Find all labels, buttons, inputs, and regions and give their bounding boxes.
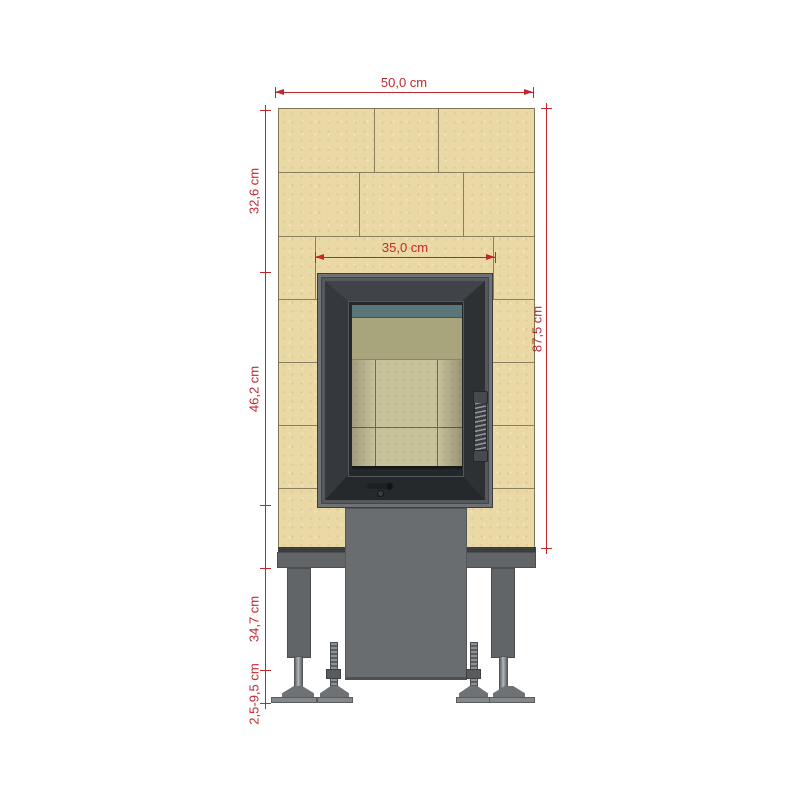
firebox-side-shadow — [352, 360, 375, 466]
firebrick-lining — [352, 360, 462, 466]
floor-plate-inner-left — [317, 697, 353, 703]
tile-joint — [438, 109, 439, 172]
pedestal-column — [345, 508, 467, 680]
dim-tick-icon — [260, 698, 271, 709]
floor-plate-outer-left — [271, 697, 317, 703]
threaded-rod-inner-right — [470, 642, 478, 690]
dim-tick-icon — [260, 665, 271, 676]
adjuster-nut-inner-left — [326, 669, 341, 679]
baffle-plate — [352, 318, 462, 360]
dim-label-insert-width: 35,0 cm — [382, 240, 428, 255]
adjuster-nut-inner-right — [466, 669, 481, 679]
support-leg-outer-left — [287, 568, 311, 658]
firebox-floor — [352, 466, 462, 469]
dim-line-total-height — [546, 108, 547, 549]
dim-line-insert-width — [315, 257, 495, 258]
dim-tick-icon — [260, 105, 271, 116]
dim-label-feet-range: 2,5-9,5 cm — [247, 663, 262, 724]
dim-arrow-icon — [275, 89, 284, 95]
dim-extension-tick — [495, 252, 496, 263]
door-latch-pin — [387, 483, 392, 490]
firebrick-joint — [375, 360, 376, 466]
door-glass — [352, 305, 462, 469]
tile-joint — [279, 172, 534, 173]
spring-handle-coil — [474, 403, 487, 451]
support-leg-outer-right — [491, 568, 515, 658]
dim-label-upper-height: 32,6 cm — [247, 168, 262, 214]
spring-handle-bottom-mount — [473, 450, 488, 462]
dim-arrow-icon — [486, 254, 495, 260]
tile-joint — [279, 236, 534, 237]
dim-label-total-height: 87,5 cm — [530, 306, 545, 352]
tile-joint — [315, 236, 316, 299]
dim-chain-left — [265, 110, 266, 703]
dim-tick-icon — [260, 500, 271, 511]
door-latch-knob — [377, 490, 384, 497]
dim-arrow-icon — [315, 254, 324, 260]
dim-tick-icon — [260, 563, 271, 574]
tile-joint — [374, 109, 375, 172]
dim-tick-icon — [541, 103, 552, 114]
tile-joint — [463, 172, 464, 236]
tile-joint — [359, 172, 360, 236]
tile-joint — [493, 236, 494, 299]
dim-label-insert-height: 46,2 cm — [247, 366, 262, 412]
dim-line-total-width — [275, 92, 533, 93]
dim-extension-tick — [533, 87, 534, 98]
drawing-canvas: 50,0 cm 35,0 cm 32,6 cm 46,2 cm 34,7 cm … — [0, 0, 800, 800]
firebox-side-shadow — [437, 360, 462, 466]
floor-plate-inner-right — [456, 697, 492, 703]
dim-tick-icon — [260, 267, 271, 278]
air-baffle-band — [352, 305, 462, 318]
threaded-rod-inner-left — [330, 642, 338, 690]
dim-arrow-icon — [524, 89, 533, 95]
floor-plate-outer-right — [489, 697, 535, 703]
dim-tick-icon — [541, 543, 552, 554]
dim-label-base-height: 34,7 cm — [247, 596, 262, 642]
dim-label-total-width: 50,0 cm — [381, 75, 427, 90]
